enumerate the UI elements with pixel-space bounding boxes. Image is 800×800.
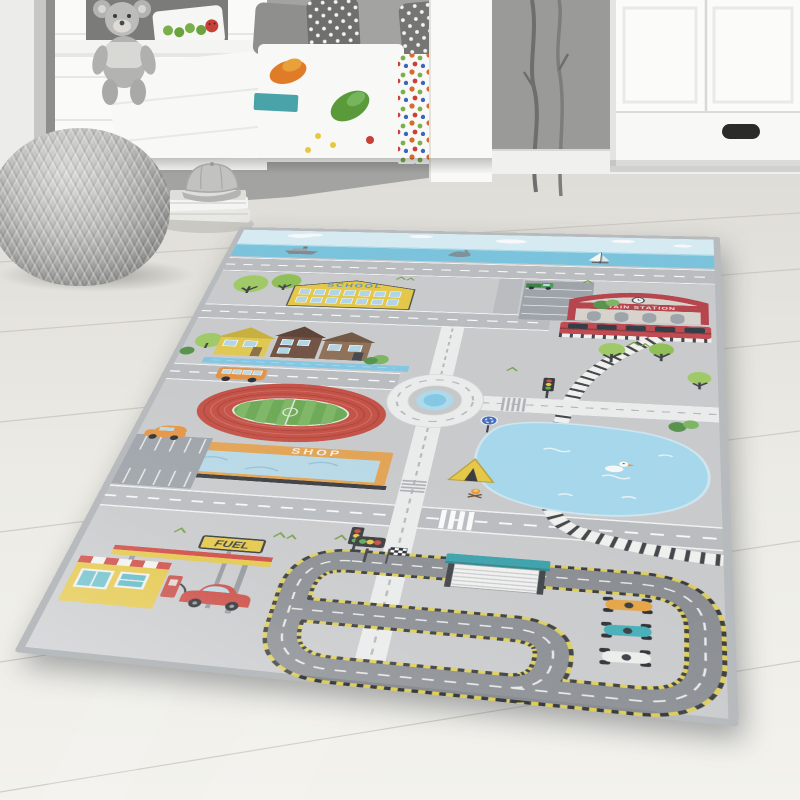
photo-scene: SCHOOL TRAIN STATION: [0, 0, 800, 800]
rug-wrapper: SCHOOL TRAIN STATION: [0, 0, 800, 800]
play-rug: SCHOOL TRAIN STATION: [14, 227, 739, 727]
